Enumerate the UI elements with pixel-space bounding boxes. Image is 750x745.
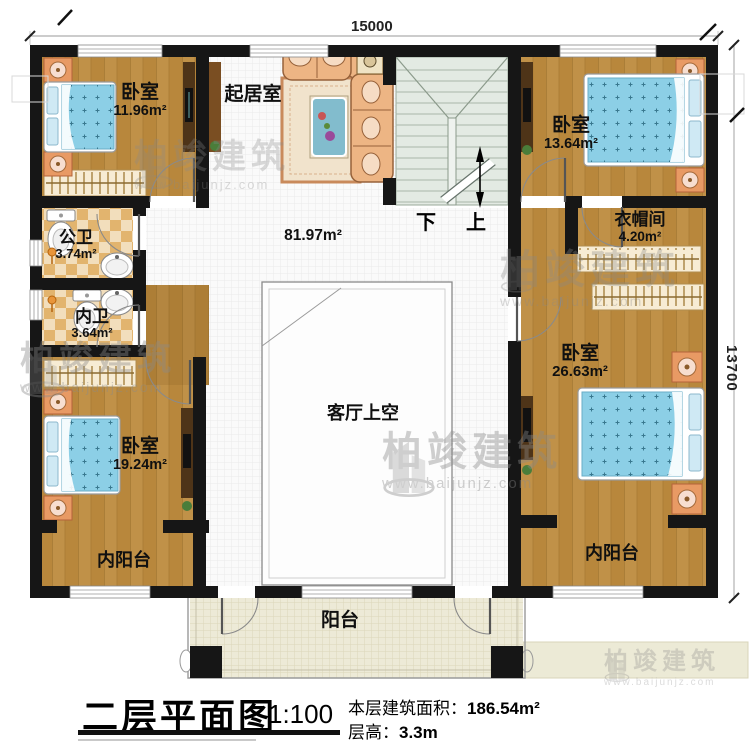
dimension-width: 15000	[348, 18, 396, 35]
room-label-void: 客厅上空	[318, 403, 408, 423]
stairs-up-label: 上	[466, 206, 486, 235]
room-label-inner-balcony-left: 内阳台	[86, 550, 162, 570]
room-label-bedroom-right: 卧室 26.63m²	[536, 343, 624, 381]
room-label-bath-private: 内卫 3.64m²	[62, 307, 122, 341]
room-label-cloakroom: 衣帽间 4.20m²	[598, 210, 682, 244]
room-label-balcony: 阳台	[304, 610, 376, 631]
room-label-inner-balcony-right: 内阳台	[572, 543, 652, 563]
wardrobe-cloakroom-2	[592, 284, 704, 310]
closet-bedroom-bl	[44, 360, 136, 387]
room-label-bath-public: 公卫 3.74m²	[46, 228, 106, 262]
living-room-sofa-set	[282, 46, 393, 182]
wardrobe-cloakroom-1	[577, 246, 701, 272]
room-label-bedroom-bl: 卧室 19.24m²	[100, 436, 180, 474]
stairs-down-label: 下	[416, 206, 436, 235]
floor-plan: 柏竣建筑 www.baijunjz.com 柏竣建筑 www.baijunjz.…	[0, 0, 750, 745]
room-label-living: 起居室	[220, 84, 286, 105]
dimension-depth: 13700	[720, 345, 743, 392]
room-label-hall-area: 81.97m²	[278, 227, 348, 244]
room-label-bedroom-tl: 卧室 11.96m²	[100, 82, 180, 120]
room-label-bedroom-tr: 卧室 13.64m²	[535, 115, 607, 153]
void-opening	[262, 282, 452, 585]
